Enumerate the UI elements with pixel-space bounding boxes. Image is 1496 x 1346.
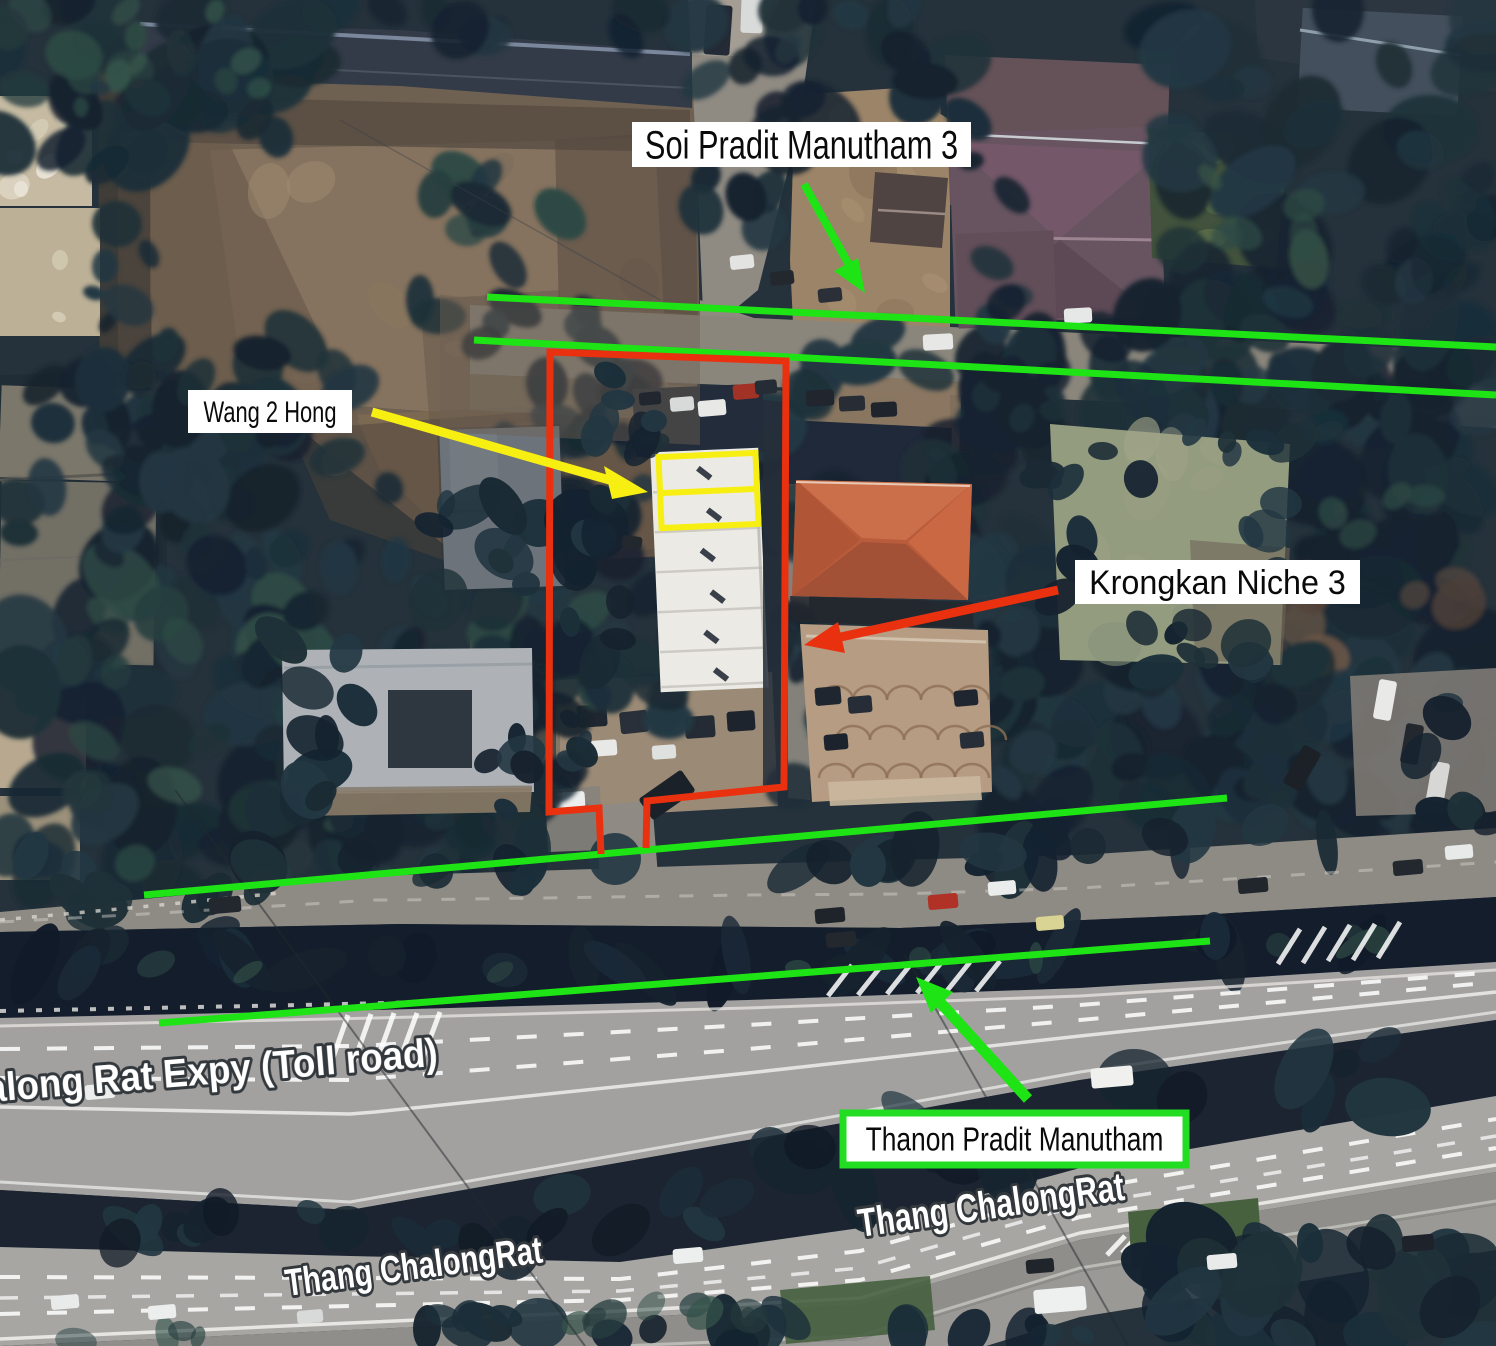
svg-text:Wang 2 Hong: Wang 2 Hong bbox=[203, 395, 336, 429]
svg-text:Thanon Pradit Manutham: Thanon Pradit Manutham bbox=[866, 1122, 1164, 1158]
svg-text:Soi Pradit Manutham 3: Soi Pradit Manutham 3 bbox=[645, 123, 958, 168]
svg-text:Krongkan Niche 3: Krongkan Niche 3 bbox=[1089, 564, 1346, 602]
